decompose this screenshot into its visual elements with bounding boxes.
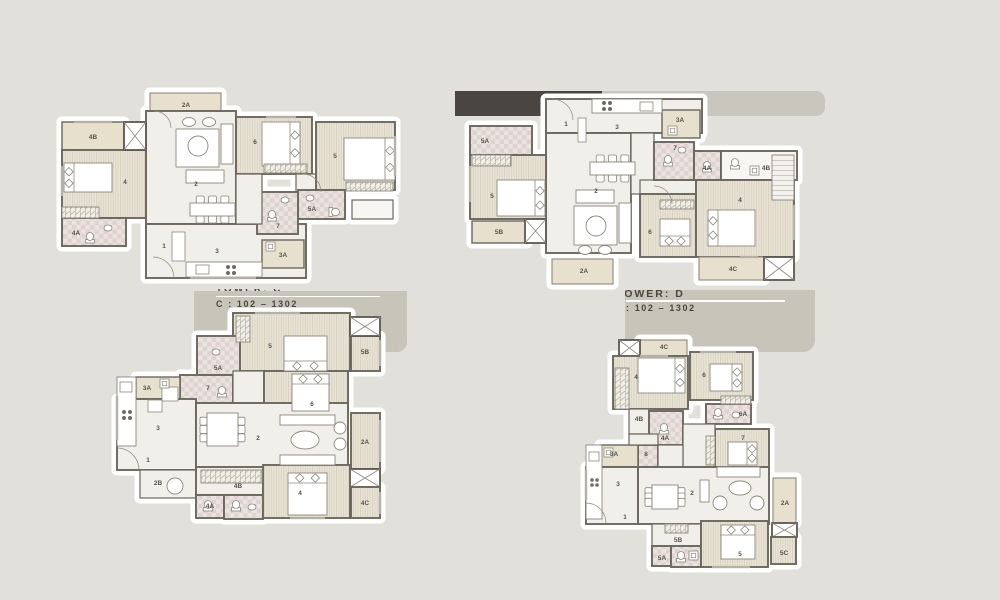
svg-text:4A: 4A bbox=[206, 503, 215, 510]
svg-text:5: 5 bbox=[490, 193, 494, 200]
svg-text:3: 3 bbox=[616, 481, 620, 488]
svg-text:5A: 5A bbox=[308, 206, 317, 213]
svg-text:5B: 5B bbox=[495, 229, 504, 236]
svg-text:5: 5 bbox=[268, 343, 272, 350]
svg-text:5B: 5B bbox=[674, 537, 683, 544]
svg-text:6: 6 bbox=[702, 372, 706, 379]
svg-text:4A: 4A bbox=[661, 435, 670, 442]
svg-text:7: 7 bbox=[206, 385, 210, 392]
svg-text:4B: 4B bbox=[89, 134, 98, 141]
svg-text:6: 6 bbox=[253, 139, 257, 146]
svg-text:4B: 4B bbox=[762, 165, 771, 172]
svg-text:4: 4 bbox=[123, 179, 127, 186]
svg-text:2A: 2A bbox=[781, 500, 790, 507]
svg-text:7: 7 bbox=[673, 145, 677, 152]
svg-text:5A: 5A bbox=[214, 365, 223, 372]
svg-text:1: 1 bbox=[623, 514, 627, 521]
svg-text:3: 3 bbox=[615, 124, 619, 131]
svg-text:2A: 2A bbox=[361, 439, 370, 446]
svg-text:6: 6 bbox=[310, 401, 314, 408]
svg-text:5B: 5B bbox=[361, 349, 370, 356]
svg-text:2: 2 bbox=[690, 490, 694, 497]
svg-text:3A: 3A bbox=[676, 117, 685, 124]
svg-text:4: 4 bbox=[738, 197, 742, 204]
svg-text:2B: 2B bbox=[154, 480, 163, 487]
svg-text:6: 6 bbox=[648, 229, 652, 236]
svg-text:5A: 5A bbox=[481, 138, 490, 145]
svg-text:5A: 5A bbox=[658, 555, 667, 562]
svg-text:2: 2 bbox=[594, 188, 598, 195]
svg-text:1: 1 bbox=[162, 243, 166, 250]
svg-text:4B: 4B bbox=[234, 483, 243, 490]
svg-text:4: 4 bbox=[634, 374, 638, 381]
svg-text:4: 4 bbox=[298, 490, 302, 497]
svg-text:4A: 4A bbox=[72, 230, 81, 237]
svg-text:3A: 3A bbox=[279, 252, 288, 259]
svg-text:1: 1 bbox=[146, 457, 150, 464]
svg-text:3: 3 bbox=[215, 248, 219, 255]
svg-text:3A: 3A bbox=[610, 451, 619, 458]
svg-text:4C: 4C bbox=[361, 500, 370, 507]
svg-text:2: 2 bbox=[194, 181, 198, 188]
svg-text:5: 5 bbox=[738, 551, 742, 558]
svg-text:7: 7 bbox=[741, 435, 745, 442]
svg-text:5C: 5C bbox=[780, 550, 789, 557]
svg-text:6A: 6A bbox=[739, 411, 748, 418]
svg-text:7: 7 bbox=[276, 223, 280, 230]
svg-text:3A: 3A bbox=[143, 385, 152, 392]
svg-text:4B: 4B bbox=[635, 416, 644, 423]
svg-text:5: 5 bbox=[333, 153, 337, 160]
svg-text:3: 3 bbox=[156, 425, 160, 432]
svg-text:2A: 2A bbox=[580, 268, 589, 275]
svg-text:1: 1 bbox=[564, 121, 568, 128]
svg-text:4C: 4C bbox=[660, 344, 669, 351]
svg-text:2A: 2A bbox=[182, 102, 191, 109]
svg-text:2: 2 bbox=[256, 435, 260, 442]
svg-text:4C: 4C bbox=[729, 266, 738, 273]
svg-text:4A: 4A bbox=[703, 165, 712, 172]
svg-text:8: 8 bbox=[644, 451, 648, 458]
